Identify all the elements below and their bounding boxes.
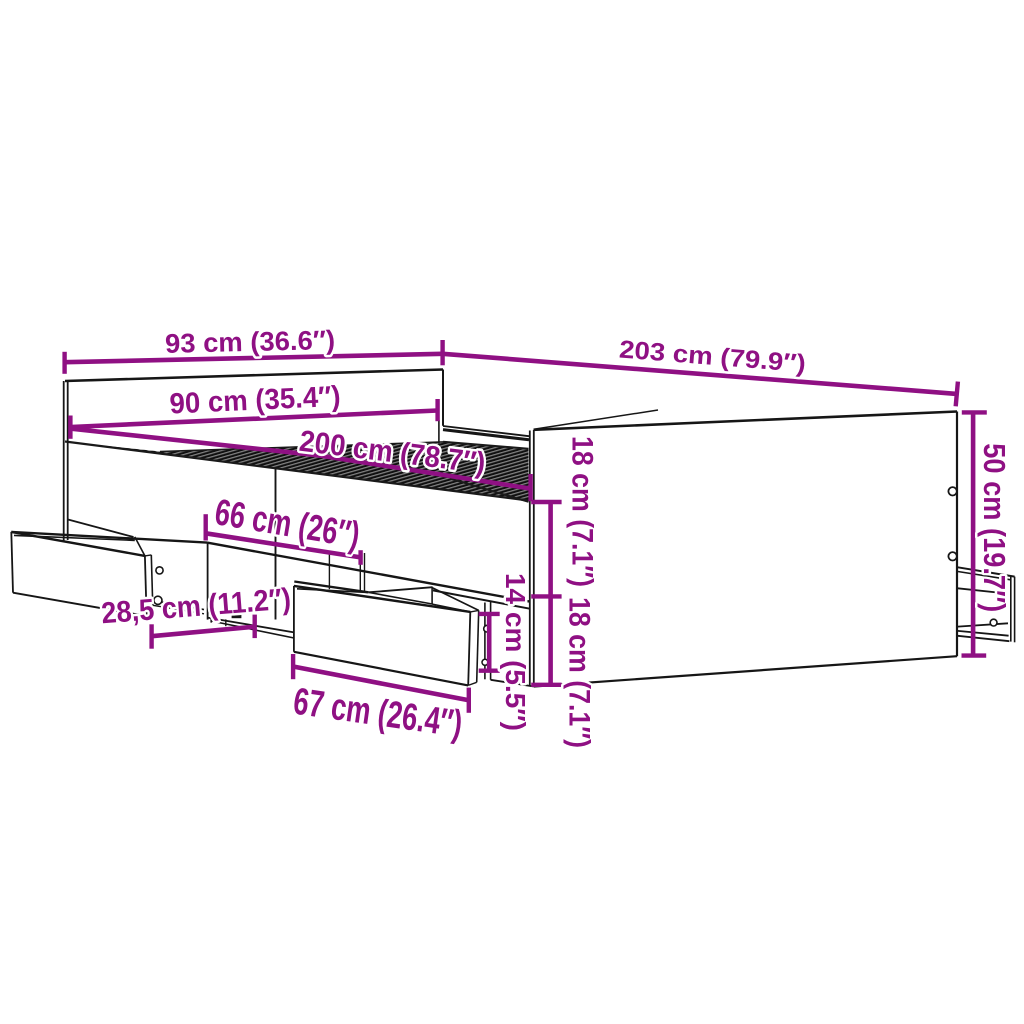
- svg-text:18 cm (7.1″): 18 cm (7.1″): [566, 436, 599, 587]
- svg-text:14 cm (5.5″): 14 cm (5.5″): [500, 573, 531, 731]
- svg-text:93 cm (36.6″): 93 cm (36.6″): [165, 325, 336, 359]
- svg-text:18 cm (7.1″): 18 cm (7.1″): [563, 597, 596, 748]
- svg-text:50 cm (19.7″): 50 cm (19.7″): [977, 443, 1012, 612]
